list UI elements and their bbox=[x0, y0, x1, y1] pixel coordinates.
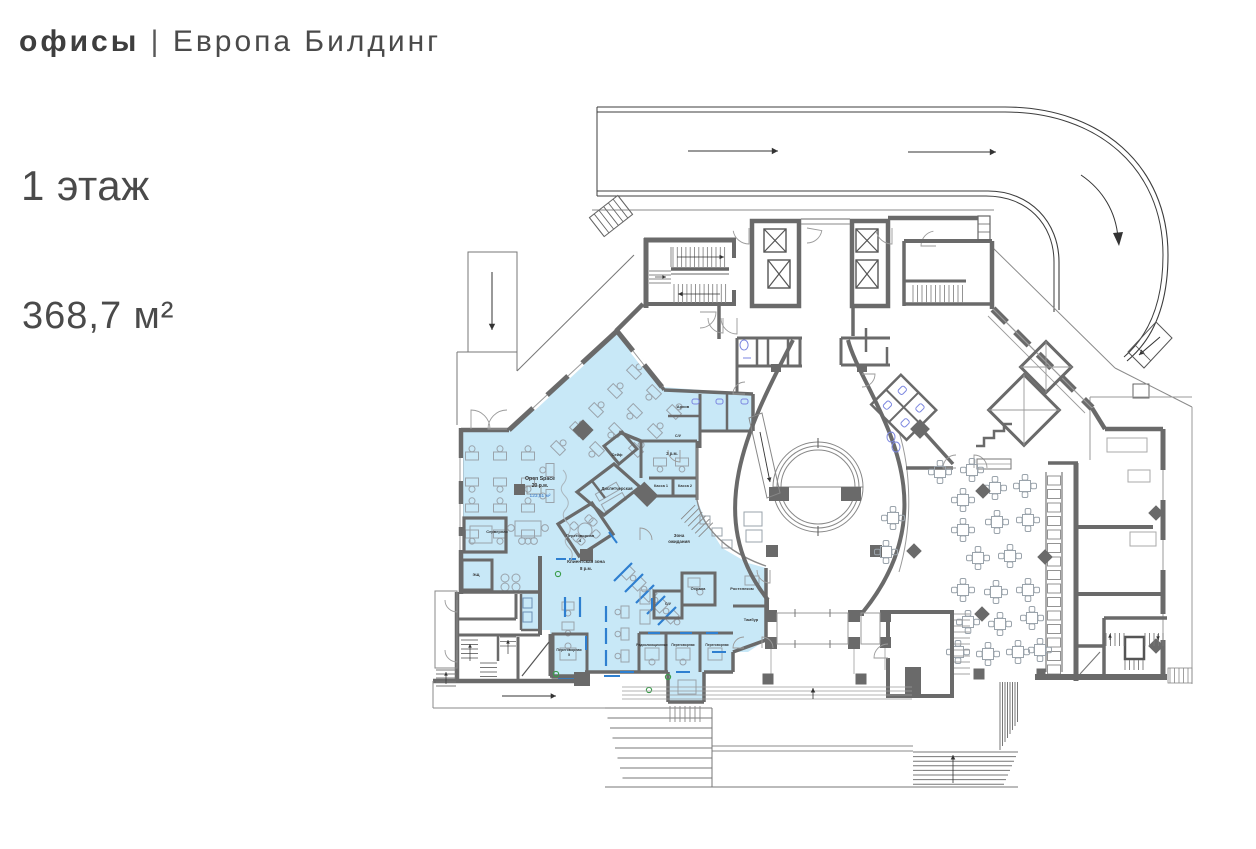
svg-text:Сейф: Сейф bbox=[611, 452, 623, 457]
svg-text:ожидания: ожидания bbox=[668, 539, 690, 544]
svg-text:2 р.м.: 2 р.м. bbox=[666, 451, 677, 456]
svg-text:ЭЩ: ЭЩ bbox=[473, 572, 481, 577]
svg-text:Переговорная: Переговорная bbox=[705, 643, 728, 647]
svg-text:С/У: С/У bbox=[665, 602, 672, 606]
svg-text:123,51 м²: 123,51 м² bbox=[530, 493, 551, 499]
svg-text:Тамбур: Тамбур bbox=[744, 617, 759, 622]
svg-text:5: 5 bbox=[568, 653, 570, 657]
svg-text:Охрана: Охрана bbox=[691, 586, 706, 591]
svg-text:Касса 2: Касса 2 bbox=[678, 484, 692, 488]
svg-text:Диспетчерская: Диспетчерская bbox=[601, 486, 633, 491]
svg-text:Ростелеком: Ростелеком bbox=[730, 586, 753, 591]
svg-text:Радиолокационная: Радиолокационная bbox=[636, 643, 667, 647]
svg-text:20 р.м.: 20 р.м. bbox=[532, 483, 549, 489]
svg-text:Переговорная: Переговорная bbox=[671, 643, 694, 647]
svg-text:Серверная: Серверная bbox=[486, 529, 508, 534]
svg-text:Opеn Sрасе: Opеn Sрасе bbox=[525, 476, 555, 482]
svg-text:Касса 1: Касса 1 bbox=[654, 484, 668, 488]
svg-text:Зона: Зона bbox=[674, 533, 685, 538]
svg-text:С/У: С/У bbox=[675, 434, 682, 438]
svg-text:Архив: Архив bbox=[677, 404, 690, 409]
svg-text:Клиентская зона: Клиентская зона bbox=[567, 559, 605, 564]
svg-text:Переговорная: Переговорная bbox=[556, 648, 581, 652]
svg-text:8 р.м.: 8 р.м. bbox=[580, 566, 592, 571]
